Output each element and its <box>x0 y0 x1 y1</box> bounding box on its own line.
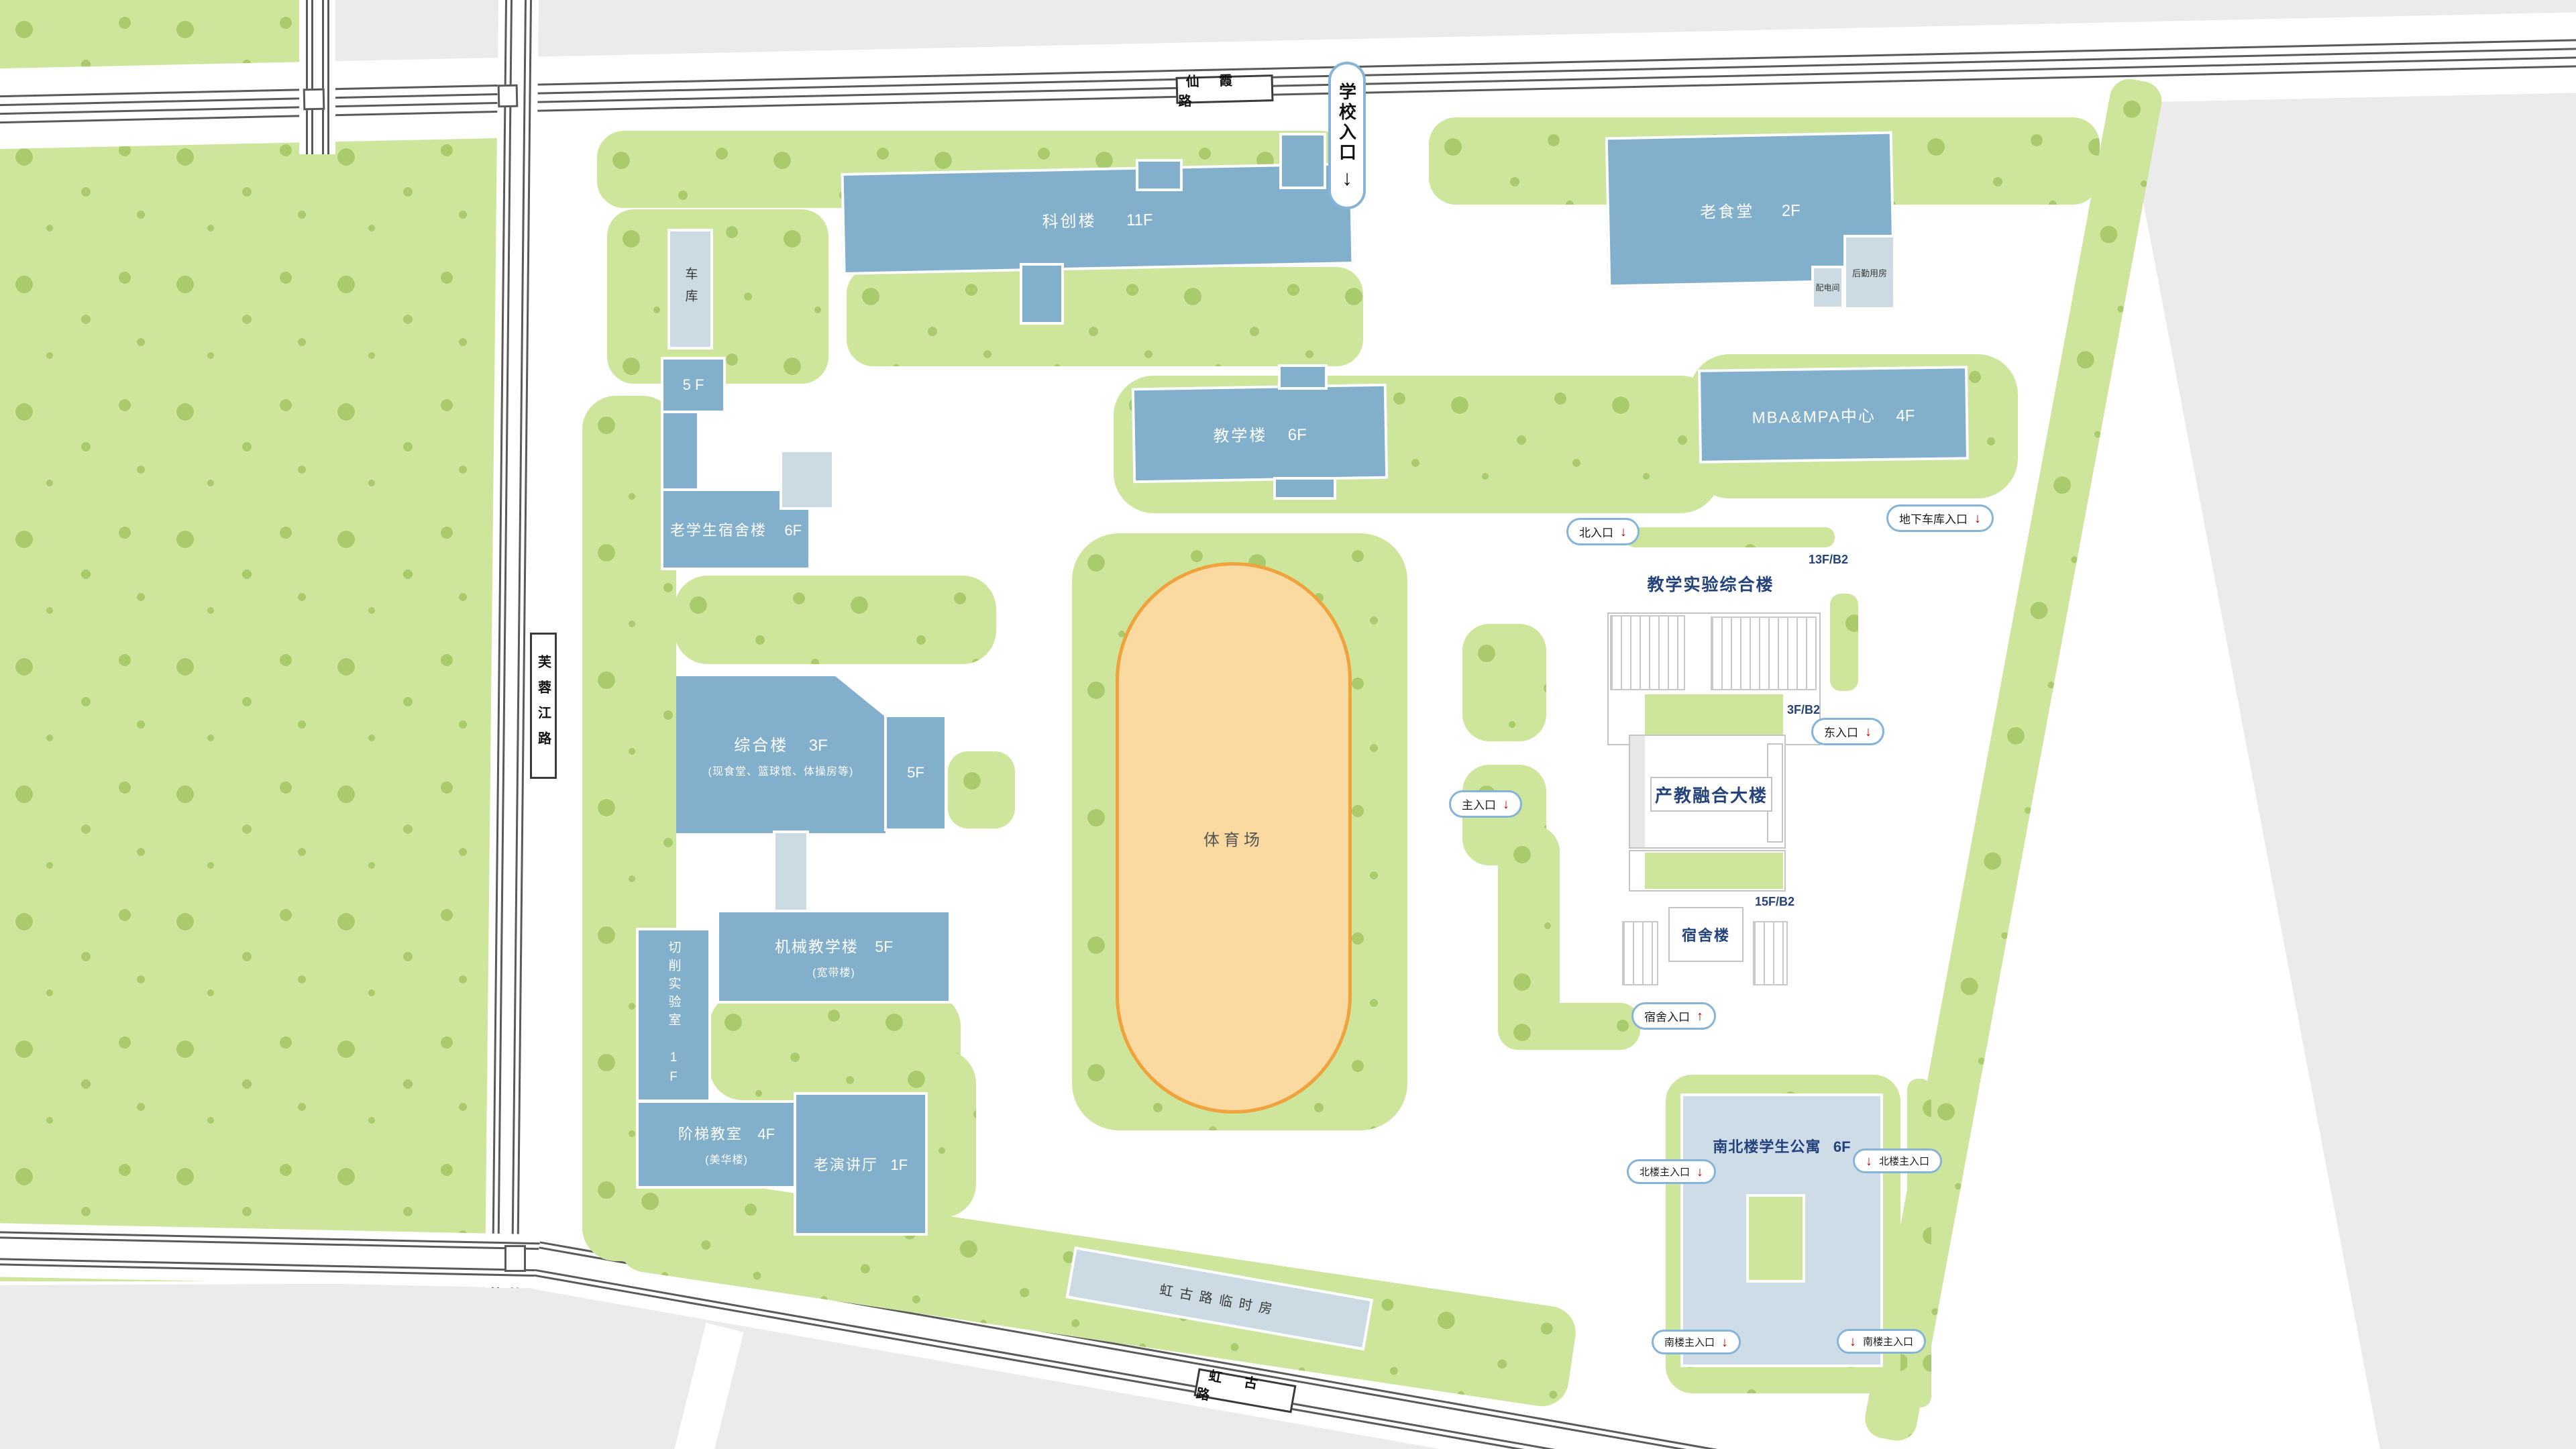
entrance-south-bldg-west: 南楼主入口 ↓ <box>1652 1330 1741 1354</box>
building-zonghelou: 综合楼 3F (现食堂、篮球馆、体操房等) <box>676 676 885 833</box>
building-jiaoxuelou-tab-n <box>1278 364 1328 390</box>
complex-hatch-ne <box>1711 616 1817 690</box>
sushelou-box: 宿舍楼 <box>1668 907 1743 962</box>
chanjiao-label: 产教融合大楼 <box>1655 782 1768 807</box>
down-arrow-icon: ↓ <box>1620 525 1627 539</box>
up-arrow-icon: ↑ <box>1697 1010 1703 1023</box>
green-complex-top <box>1625 527 1835 547</box>
building-qiexiao: 切削实验室 1F <box>636 928 711 1102</box>
building-jieti: 阶梯教室 4F (美华楼) <box>636 1100 817 1189</box>
chanjiao-gray-strip <box>1630 736 1645 847</box>
building-zonghe-5f: 5F <box>884 714 947 831</box>
school-entrance-label: 学校入口 <box>1335 83 1360 163</box>
down-arrow-icon: ↓ <box>1503 798 1509 811</box>
building-laoxuesheng-annex <box>780 449 835 510</box>
road-crossing-box <box>504 1245 526 1272</box>
road-crossing-box <box>498 85 519 108</box>
building-jixie: 机械教学楼 5F (宽带楼) <box>716 910 951 1004</box>
green-main-entrance-l-h <box>1498 1003 1640 1050</box>
down-arrow-icon: ↓ <box>1865 725 1872 739</box>
jixie-note: (宽带楼) <box>812 963 855 979</box>
building-kechuang-tab <box>1020 263 1064 325</box>
zonghelou-note: (现食堂、篮球馆、体操房等) <box>708 762 854 778</box>
stadium-label: 体育场 <box>1203 826 1264 850</box>
building-peidianjian: 配电间 <box>1811 266 1844 309</box>
entrance-dorm: 宿舍入口 ↑ <box>1631 1002 1716 1030</box>
complex-hatch-se <box>1753 921 1788 985</box>
building-cheku: 车库 <box>667 229 713 350</box>
down-arrow-icon: ↓ <box>1721 1336 1728 1349</box>
spec-13f-b2: 13F/B2 <box>1809 553 1848 567</box>
road-label-furongjiang: 芙蓉江路 <box>530 633 557 779</box>
green-east-of-zonghe <box>948 751 1015 828</box>
entrance-main: 主入口 ↓ <box>1449 790 1522 818</box>
entrance-north-bldg-west: 北楼主入口 ↓ <box>1627 1159 1716 1184</box>
offcampus-green-west <box>0 0 508 1281</box>
spec-15f-b2: 15F/B2 <box>1755 895 1794 909</box>
entrance-south-bldg-east: ↓ 南楼主入口 <box>1837 1329 1926 1354</box>
building-small-annex-2 <box>1279 133 1326 189</box>
down-arrow-icon: ↓ <box>1697 1165 1703 1179</box>
offcampus-gray-east <box>2080 40 2576 1449</box>
down-arrow-icon: ↓ <box>1866 1155 1872 1168</box>
complex-hatch-nw <box>1610 615 1685 690</box>
road-north-stub <box>299 0 335 154</box>
sushelou-label: 宿舍楼 <box>1682 924 1730 945</box>
chanjiao-label-box: 产教融合大楼 <box>1650 777 1772 812</box>
green-below-kechuang <box>847 267 1363 366</box>
building-jiaoxuelou: 教学楼 6F <box>1132 384 1388 484</box>
building-zonghe-annex <box>773 830 809 914</box>
complex-hatch-sw <box>1622 921 1658 985</box>
road-label-xianxia: 仙 霞 路 <box>1176 74 1274 104</box>
building-laoyanjiangting: 老演讲厅 1F <box>794 1092 928 1236</box>
school-entrance-marker: 学校入口 ↓ <box>1328 62 1366 209</box>
building-jiaoxuelou-tab-s <box>1273 477 1336 500</box>
nanbei-courtyard <box>1746 1194 1805 1283</box>
green-nanbei-east <box>1907 1079 1931 1407</box>
green-mid-west <box>674 576 996 664</box>
green-east-of-stadium-1 <box>1462 624 1546 741</box>
jieti-note: (美华楼) <box>705 1150 748 1167</box>
down-arrow-icon: ↓ <box>1974 512 1981 525</box>
entrance-garage: 地下车库入口 ↓ <box>1886 504 1994 532</box>
building-5f-wing <box>661 411 700 495</box>
building-mba: MBA&MPA中心 4F <box>1698 366 1969 464</box>
building-small-annex-1 <box>1136 159 1183 191</box>
building-kechuang: 科创楼 11F <box>841 162 1354 275</box>
complex-green-mid <box>1645 853 1783 889</box>
down-arrow-icon: ↓ <box>1849 1335 1856 1348</box>
entrance-north-bldg-east: ↓ 北楼主入口 <box>1853 1148 1942 1173</box>
campus-map: 体育场 产教融合大楼 宿舍楼 教学实验综合楼 13F/B2 3F/B2 15F/… <box>0 0 2576 1449</box>
green-complex-east <box>1830 594 1858 691</box>
building-houqin: 后勤用房 <box>1843 235 1896 310</box>
building-5f: 5 F <box>661 357 726 413</box>
entrance-east: 东入口 ↓ <box>1811 718 1884 745</box>
spec-3f-b2: 3F/B2 <box>1787 703 1820 717</box>
jiaoxueshiyan-title: 教学实验综合楼 <box>1623 572 1798 596</box>
road-crossing-box <box>303 89 325 111</box>
stadium: 体育场 <box>1116 562 1352 1114</box>
entrance-north: 北入口 ↓ <box>1566 518 1640 545</box>
down-arrow-icon: ↓ <box>1342 167 1352 189</box>
